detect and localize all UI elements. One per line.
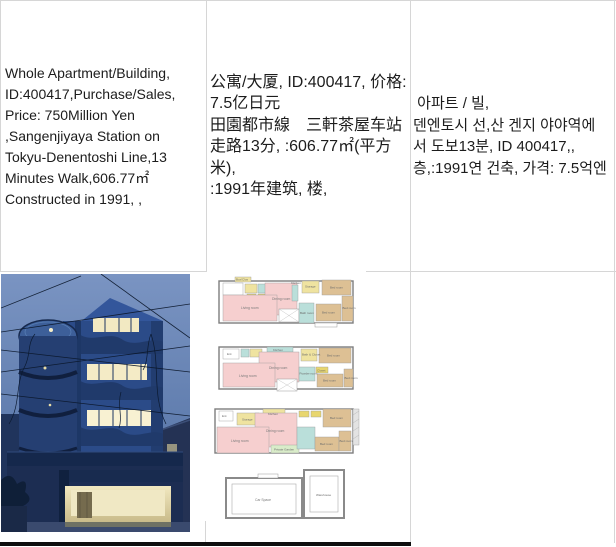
room-label: Warehouse xyxy=(316,493,332,497)
room-label: Bed room xyxy=(327,354,341,358)
floor-plan-1-rooms: Box/Clos Living room Dining room Kitchen… xyxy=(219,277,356,327)
room-label: Ent xyxy=(222,414,227,418)
room-label: Powder room xyxy=(300,372,318,376)
room-label: Car Space xyxy=(255,498,271,502)
room-label: Bed room xyxy=(330,286,344,290)
column-divider-2 xyxy=(410,0,411,542)
room-label: Dining room xyxy=(266,429,284,433)
listing-page: Whole Apartment/Building, ID:400417,Purc… xyxy=(0,0,616,547)
listing-line: 층,:1991연 건축, 가격: 7.5억엔 xyxy=(413,158,614,180)
listing-line: 아파트 / 빌, xyxy=(413,93,614,115)
listing-cell-en: Whole Apartment/Building, ID:400417,Purc… xyxy=(1,1,206,271)
listing-line: 7.5亿日元 xyxy=(210,93,410,115)
room-label: Bed room xyxy=(330,416,344,420)
room-label: Bed room xyxy=(323,379,337,383)
listing-cell-zh: 公寓/大厦, ID:400417, 价格: 7.5亿日元 田園都市線 三軒茶屋车… xyxy=(207,1,410,271)
row-divider xyxy=(0,271,206,272)
floor-plan-3-rooms: Ent Storage Kitchen Dining room Living r… xyxy=(215,409,359,453)
floor-plan-1[interactable]: Box/Clos Living room Dining room Kitchen… xyxy=(215,275,360,330)
listing-cell-ko: 아파트 / 빌, 덴엔토시 선,산 겐지 야야역에 서 도보13분, ID 40… xyxy=(411,1,614,271)
listing-line: Minutes Walk,606.77㎡ xyxy=(5,168,206,189)
room-label: Storage xyxy=(305,285,316,289)
room-label: Bed room xyxy=(343,306,357,310)
table-border-left xyxy=(0,0,1,272)
listing-line: 덴엔토시 선,산 겐지 야야역에 xyxy=(413,115,614,137)
room-label: Private Garden xyxy=(274,448,295,452)
listing-line: ,Sangenjiyaya Station on xyxy=(5,126,206,147)
room-label: Bed room xyxy=(345,376,359,380)
floor-plan-4-rooms: Car Space Warehouse xyxy=(226,470,344,518)
apartment-building xyxy=(63,298,163,472)
room-label: Bed room xyxy=(320,442,334,446)
foreground-bush xyxy=(1,476,30,532)
listing-line: 田園都市線 三軒茶屋车站 xyxy=(210,115,410,137)
curved-balcony-tower xyxy=(19,320,77,454)
room-label: Box/Clos xyxy=(236,278,249,282)
room-label: Living room xyxy=(231,439,249,443)
listing-line: :1991年建筑, 楼, xyxy=(210,179,410,201)
room-label: Living room xyxy=(241,306,259,310)
room-label: Closet xyxy=(317,369,326,373)
next-row-image-edge xyxy=(0,542,411,546)
building-photo-image[interactable] xyxy=(1,274,190,532)
table-border-top xyxy=(0,0,616,1)
room-label: Kitchen xyxy=(273,348,283,352)
listing-line: ID:400417,Purchase/Sales, xyxy=(5,84,206,105)
floor-plan-2[interactable]: Ent Kitchen Dining room Living room Bath… xyxy=(215,341,360,396)
column-divider-1 xyxy=(206,0,207,272)
listing-line: Price: 750Million Yen xyxy=(5,105,206,126)
floor-plan-3[interactable]: Ent Storage Kitchen Dining room Living r… xyxy=(211,401,363,458)
room-label: Kitchen xyxy=(268,412,278,416)
listing-line: 서 도보13분, ID 400417,, xyxy=(413,136,614,158)
room-label: Living room xyxy=(239,374,257,378)
room-label: Bath & Closet xyxy=(302,353,321,357)
room-label: Kitchen xyxy=(291,281,301,285)
entrance-and-garage xyxy=(1,452,190,532)
listing-line: 走路13分, :606.77㎡(平方米), xyxy=(210,136,410,179)
room-label: Dining room xyxy=(269,366,287,370)
listing-line: Tokyu-Denentoshi Line,13 xyxy=(5,147,206,168)
room-label: Bath room xyxy=(300,311,314,315)
row-divider xyxy=(366,271,616,272)
listing-line: 公寓/大厦, ID:400417, 价格: xyxy=(210,72,410,94)
room-label: Storage xyxy=(242,418,253,422)
floor-plan-2-rooms: Ent Kitchen Dining room Living room Bath… xyxy=(219,347,358,391)
column-divider-1-lower xyxy=(205,521,206,542)
listing-line: Whole Apartment/Building, xyxy=(5,63,206,84)
room-label: Bed room xyxy=(322,311,336,315)
room-label: Ent xyxy=(227,352,232,356)
listing-line: Constructed in 1991, , xyxy=(5,189,206,210)
room-label: Dining room xyxy=(272,297,290,301)
floor-plan-4[interactable]: Car Space Warehouse xyxy=(222,464,348,522)
room-label: Bed room xyxy=(340,439,354,443)
